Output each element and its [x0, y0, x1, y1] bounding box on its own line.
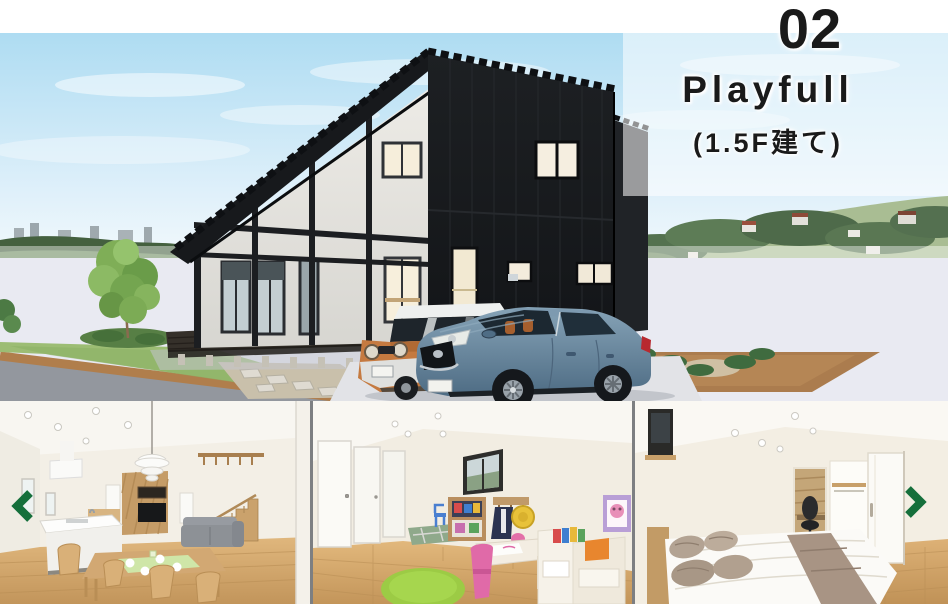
house-plan-showcase: 02 Playfull (1.5F建て) [0, 0, 948, 604]
door-handle [870, 503, 873, 517]
top-white-band [0, 0, 948, 33]
window [463, 449, 503, 495]
range-hood [50, 459, 82, 479]
hero-exterior-illustration [0, 33, 948, 401]
closet-doors [318, 441, 405, 547]
thumbnail-strip [0, 401, 948, 604]
carousel-prev-button[interactable] [8, 486, 38, 526]
bed [647, 527, 897, 604]
right-wall-edge [296, 401, 310, 604]
orange-box [585, 538, 609, 561]
carousel-next-button[interactable] [900, 482, 930, 522]
chevron-left-icon [11, 489, 35, 523]
chair [150, 565, 174, 599]
thumbnail-kids-room[interactable] [313, 401, 632, 604]
high-window [645, 409, 676, 460]
kids-room-illustration [313, 401, 632, 604]
chair [58, 544, 80, 575]
hero-image [0, 33, 948, 401]
ldk-illustration [0, 401, 310, 604]
chevron-right-icon [903, 485, 927, 519]
label-backdrop-panel [623, 33, 948, 196]
sofa [181, 517, 244, 547]
toy-shelf [448, 497, 486, 541]
picture-frame [603, 495, 631, 532]
chair [196, 572, 220, 603]
white-step-shelf [538, 527, 625, 604]
thumbnail-living-dining-kitchen[interactable] [0, 401, 310, 604]
tv-accent-wall [122, 471, 168, 535]
headboard [647, 527, 669, 604]
